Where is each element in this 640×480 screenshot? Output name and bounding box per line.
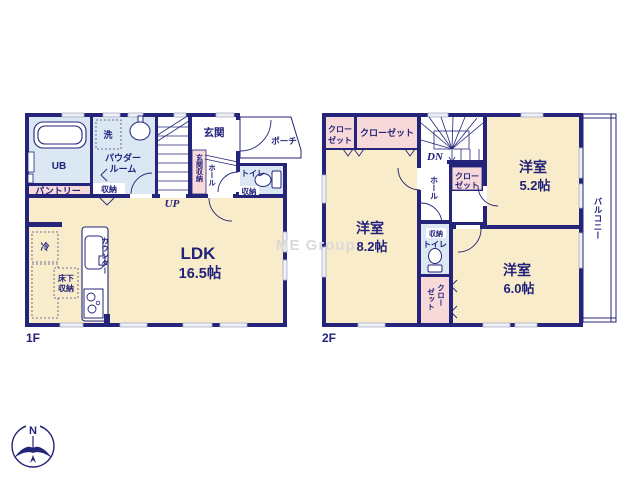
f2-label-closet-small2: ゼット [328, 135, 352, 145]
f1-label-entrance-storage: 玄関収納 [195, 153, 203, 183]
f1-label-ldk: LDK [181, 244, 217, 263]
f1-room-ldk [29, 198, 283, 323]
f2-floor-label: 2F [322, 331, 336, 345]
f2-label-storage: 収納 [429, 229, 443, 238]
f2-label-room60-size: 6.0帖 [503, 281, 534, 296]
f1-label-ub: UB [52, 161, 66, 172]
f1-floor-label: 1F [26, 331, 40, 345]
f1-label-wash: 洗 [103, 129, 112, 140]
f1-label-powder1: パウダー [105, 152, 141, 163]
f2-toilet-icon [428, 249, 442, 273]
f1-label-underfloor2: 収納 [58, 283, 74, 293]
f1-label-hall: ホール [207, 164, 216, 187]
f2-label-closet-wide: クローゼット [360, 127, 414, 138]
f2-label-balcony: バルコニー [593, 196, 603, 239]
compass: N [12, 423, 54, 467]
f1-label-counter: カウンター [100, 237, 109, 275]
f1-label-powder2: ルーム [110, 164, 137, 174]
floor-plan-svg: UB 洗 パウダー ルーム パントリー 収納 UP 玄関 玄関収納 ホール トイ… [0, 0, 640, 480]
f1-label-underfloor1: 床下 [58, 273, 74, 283]
compass-north-label: N [29, 425, 37, 437]
f1-label-pantry: パントリー [35, 185, 80, 196]
f2-label-room82: 洋室 [356, 220, 384, 236]
f1-label-toilet-storage: 収納 [242, 186, 257, 196]
f1-bathtub-icon [34, 122, 86, 148]
f1-label-toilet: トイレ [241, 169, 265, 178]
f2-label-closet-v1: クロー [437, 284, 446, 307]
floor-plan-image: UB 洗 パウダー ルーム パントリー 収納 UP 玄関 玄関収納 ホール トイ… [0, 0, 640, 480]
f1-underfloor-box [54, 268, 78, 298]
floor-2f: クロー ゼット クローゼット DN ホール クロー ゼット 洋室 5.2帖 洋室… [322, 113, 616, 345]
f2-vestibule [452, 191, 483, 222]
f1-label-entrance: 玄関 [204, 126, 225, 139]
f1-label-porch: ポーチ [271, 136, 297, 146]
f1-label-fridge: 冷 [40, 241, 49, 252]
f2-label-closet-mid2: ゼット [455, 180, 479, 190]
f2-label-room82-size: 8.2帖 [356, 239, 387, 254]
f2-label-closet-mid1: クロー [455, 171, 479, 181]
f1-label-storage: 収納 [101, 184, 117, 194]
f2-label-closet-small1: クロー [328, 124, 352, 134]
f2-label-toilet: トイレ [423, 240, 447, 249]
f1-shower-panel-icon [28, 152, 34, 183]
f1-label-ldk-size: 16.5帖 [179, 264, 222, 282]
f2-label-room52-size: 5.2帖 [519, 178, 550, 193]
watermark: ME Group [276, 237, 356, 254]
f2-label-closet-v2: ゼット [426, 287, 435, 311]
floor-1f: UB 洗 パウダー ルーム パントリー 収納 UP 玄関 玄関収納 ホール トイ… [25, 113, 301, 345]
f1-label-up: UP [165, 198, 180, 210]
f2-label-hall: ホール [430, 176, 439, 200]
f2-label-room52: 洋室 [519, 159, 547, 175]
f1-stairs-area [158, 117, 188, 194]
f2-label-room60: 洋室 [503, 262, 531, 278]
f2-label-dn: DN [426, 151, 444, 163]
